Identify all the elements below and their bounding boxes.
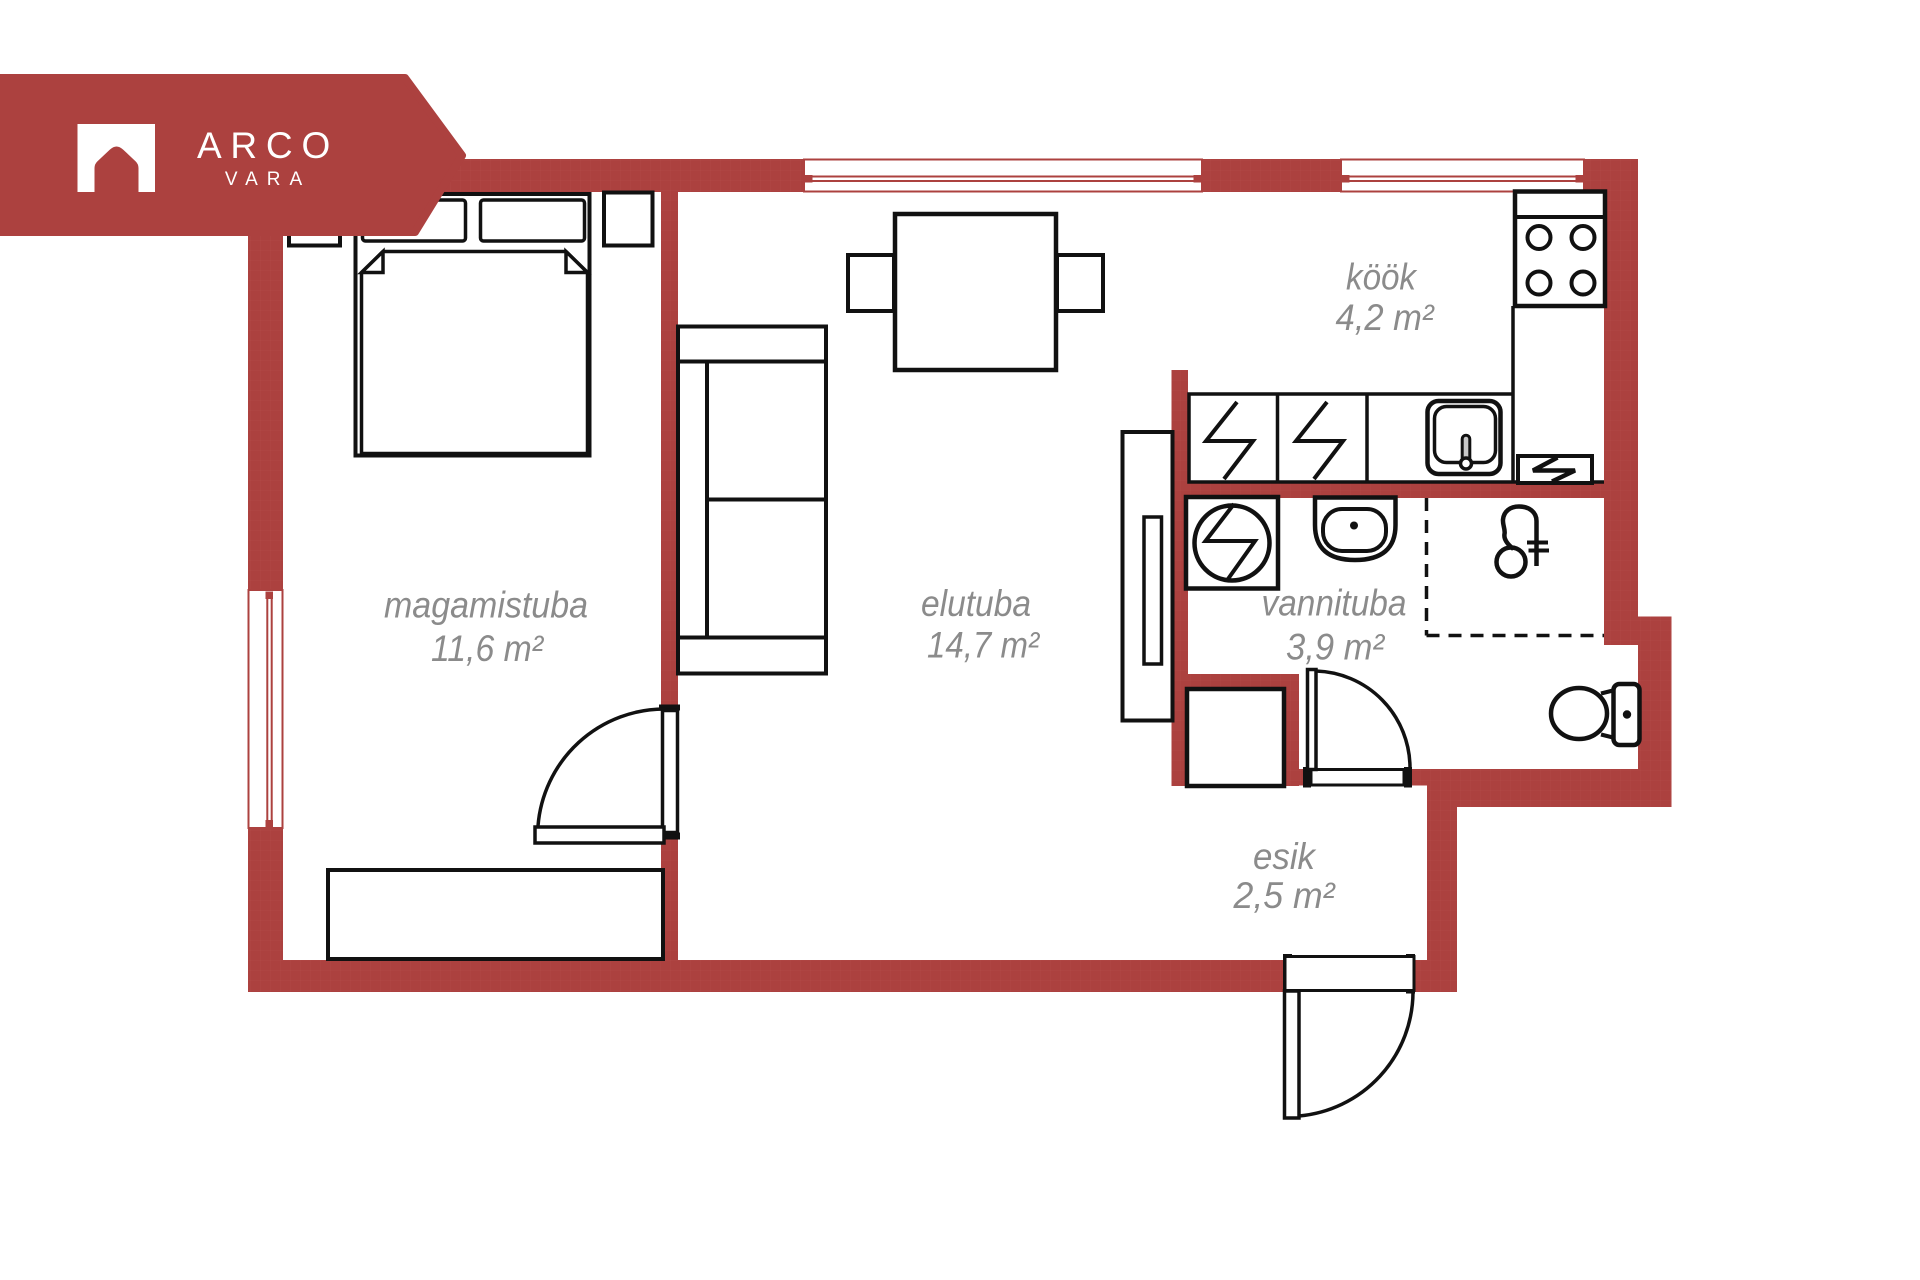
svg-text:2,5 m²: 2,5 m²	[1233, 875, 1337, 916]
svg-text:VARA: VARA	[225, 169, 311, 190]
svg-text:köök: köök	[1346, 257, 1418, 298]
svg-text:11,6 m²: 11,6 m²	[431, 628, 545, 669]
svg-text:4,2 m²: 4,2 m²	[1336, 297, 1436, 338]
svg-text:esik: esik	[1253, 836, 1317, 877]
svg-text:magamistuba: magamistuba	[384, 585, 588, 626]
svg-text:14,7 m²: 14,7 m²	[927, 625, 1040, 666]
svg-text:elutuba: elutuba	[921, 583, 1031, 624]
svg-text:ARCO: ARCO	[197, 125, 339, 166]
svg-text:3,9 m²: 3,9 m²	[1286, 627, 1386, 668]
svg-text:vannituba: vannituba	[1262, 583, 1407, 624]
